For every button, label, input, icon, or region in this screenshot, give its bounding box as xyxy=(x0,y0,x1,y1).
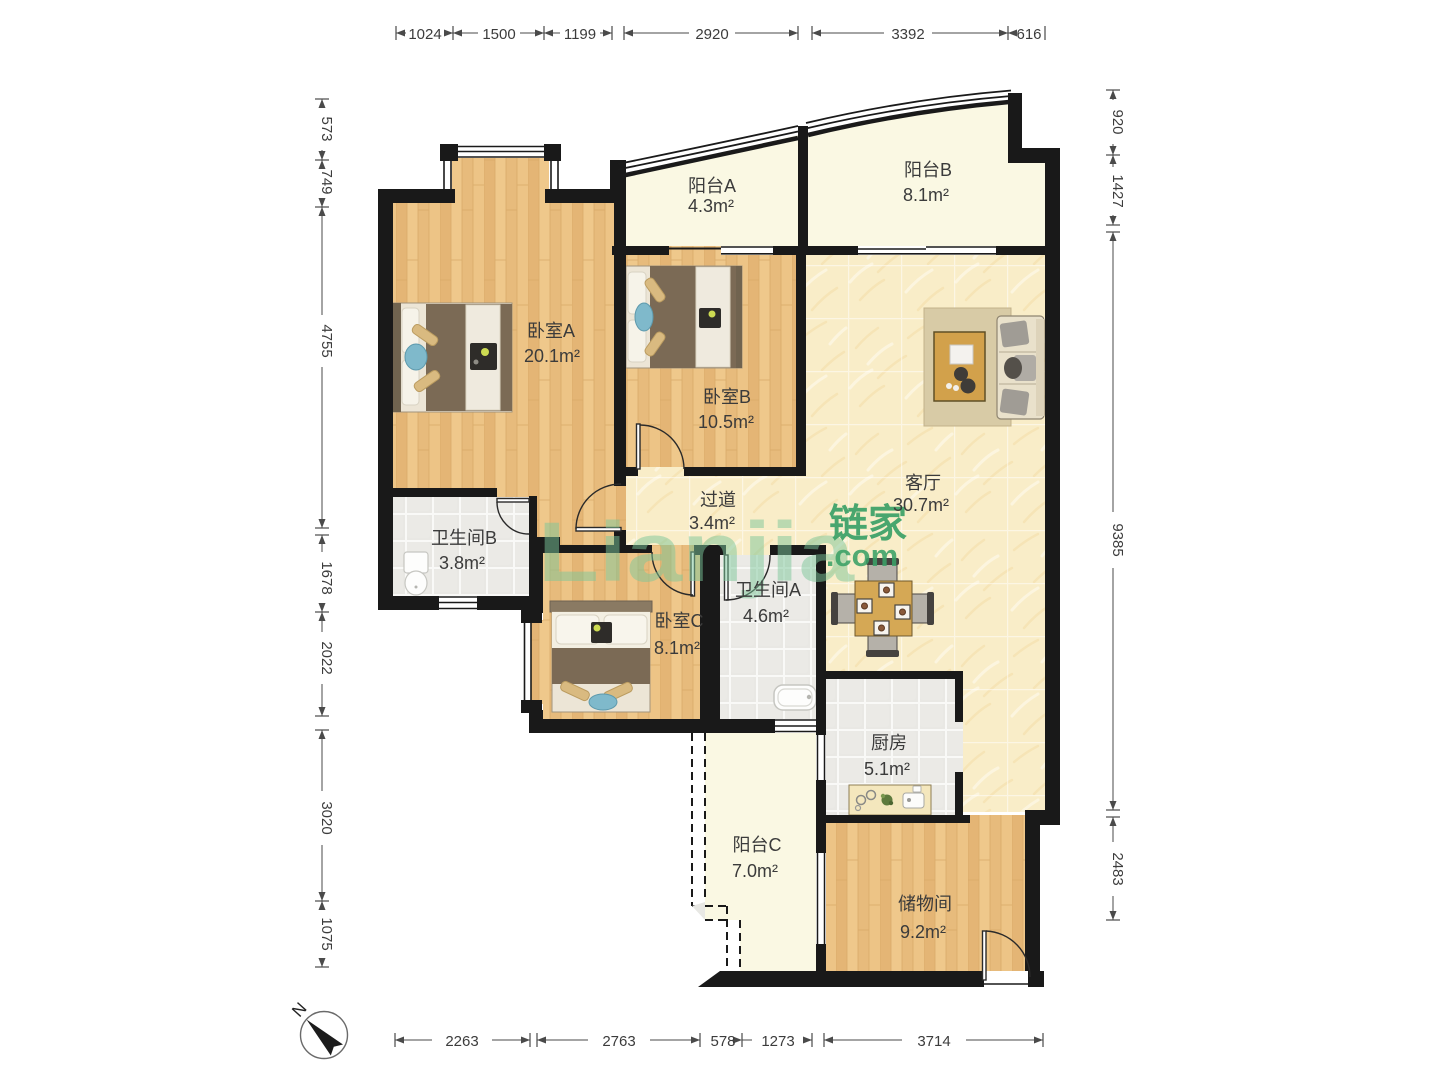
svg-text:阳台C: 阳台C xyxy=(733,835,782,855)
svg-text:厨房: 厨房 xyxy=(871,733,907,753)
svg-text:卧室C: 卧室C xyxy=(655,611,704,631)
svg-text:920: 920 xyxy=(1109,109,1126,134)
svg-text:3.8m²: 3.8m² xyxy=(439,553,485,573)
svg-text:3392: 3392 xyxy=(891,26,924,43)
svg-text:8.1m²: 8.1m² xyxy=(654,638,700,658)
svg-text:2763: 2763 xyxy=(602,1033,635,1050)
svg-text:20.1m²: 20.1m² xyxy=(524,346,580,366)
svg-text:3020: 3020 xyxy=(318,801,335,834)
svg-text:卧室B: 卧室B xyxy=(703,387,751,407)
svg-text:9385: 9385 xyxy=(1109,523,1126,556)
svg-text:7.0m²: 7.0m² xyxy=(732,861,778,881)
svg-text:10.5m²: 10.5m² xyxy=(698,412,754,432)
svg-text:卫生间B: 卫生间B xyxy=(431,528,497,548)
svg-text:616: 616 xyxy=(1016,26,1041,43)
svg-text:2022: 2022 xyxy=(318,641,335,674)
svg-text:5.1m²: 5.1m² xyxy=(864,759,910,779)
svg-text:4755: 4755 xyxy=(318,324,335,357)
svg-text:578: 578 xyxy=(710,1033,735,1050)
svg-text:9.2m²: 9.2m² xyxy=(900,922,946,942)
svg-text:8.1m²: 8.1m² xyxy=(903,185,949,205)
svg-text:2263: 2263 xyxy=(445,1033,478,1050)
svg-text:30.7m²: 30.7m² xyxy=(893,495,949,515)
svg-text:储物间: 储物间 xyxy=(898,894,952,914)
svg-text:阳台A: 阳台A xyxy=(688,176,736,196)
svg-text:3714: 3714 xyxy=(917,1033,950,1050)
svg-text:卧室A: 卧室A xyxy=(527,321,575,341)
svg-text:卫生间A: 卫生间A xyxy=(735,580,801,600)
svg-text:1678: 1678 xyxy=(318,561,335,594)
svg-text:1075: 1075 xyxy=(318,917,335,950)
svg-text:2920: 2920 xyxy=(695,26,728,43)
svg-text:1199: 1199 xyxy=(564,26,596,43)
svg-text:过道: 过道 xyxy=(700,490,736,510)
svg-text:客厅: 客厅 xyxy=(905,473,941,493)
svg-text:.com: .com xyxy=(826,538,898,573)
svg-text:749: 749 xyxy=(318,169,335,194)
svg-text:1273: 1273 xyxy=(761,1033,794,1050)
svg-text:1427: 1427 xyxy=(1109,174,1126,207)
svg-text:4.6m²: 4.6m² xyxy=(743,606,789,626)
svg-text:1024: 1024 xyxy=(408,26,441,43)
svg-text:阳台B: 阳台B xyxy=(904,160,952,180)
svg-text:1500: 1500 xyxy=(482,26,515,43)
svg-text:4.3m²: 4.3m² xyxy=(688,196,734,216)
svg-text:3.4m²: 3.4m² xyxy=(689,513,735,533)
svg-text:573: 573 xyxy=(318,116,335,141)
svg-text:2483: 2483 xyxy=(1109,852,1126,885)
